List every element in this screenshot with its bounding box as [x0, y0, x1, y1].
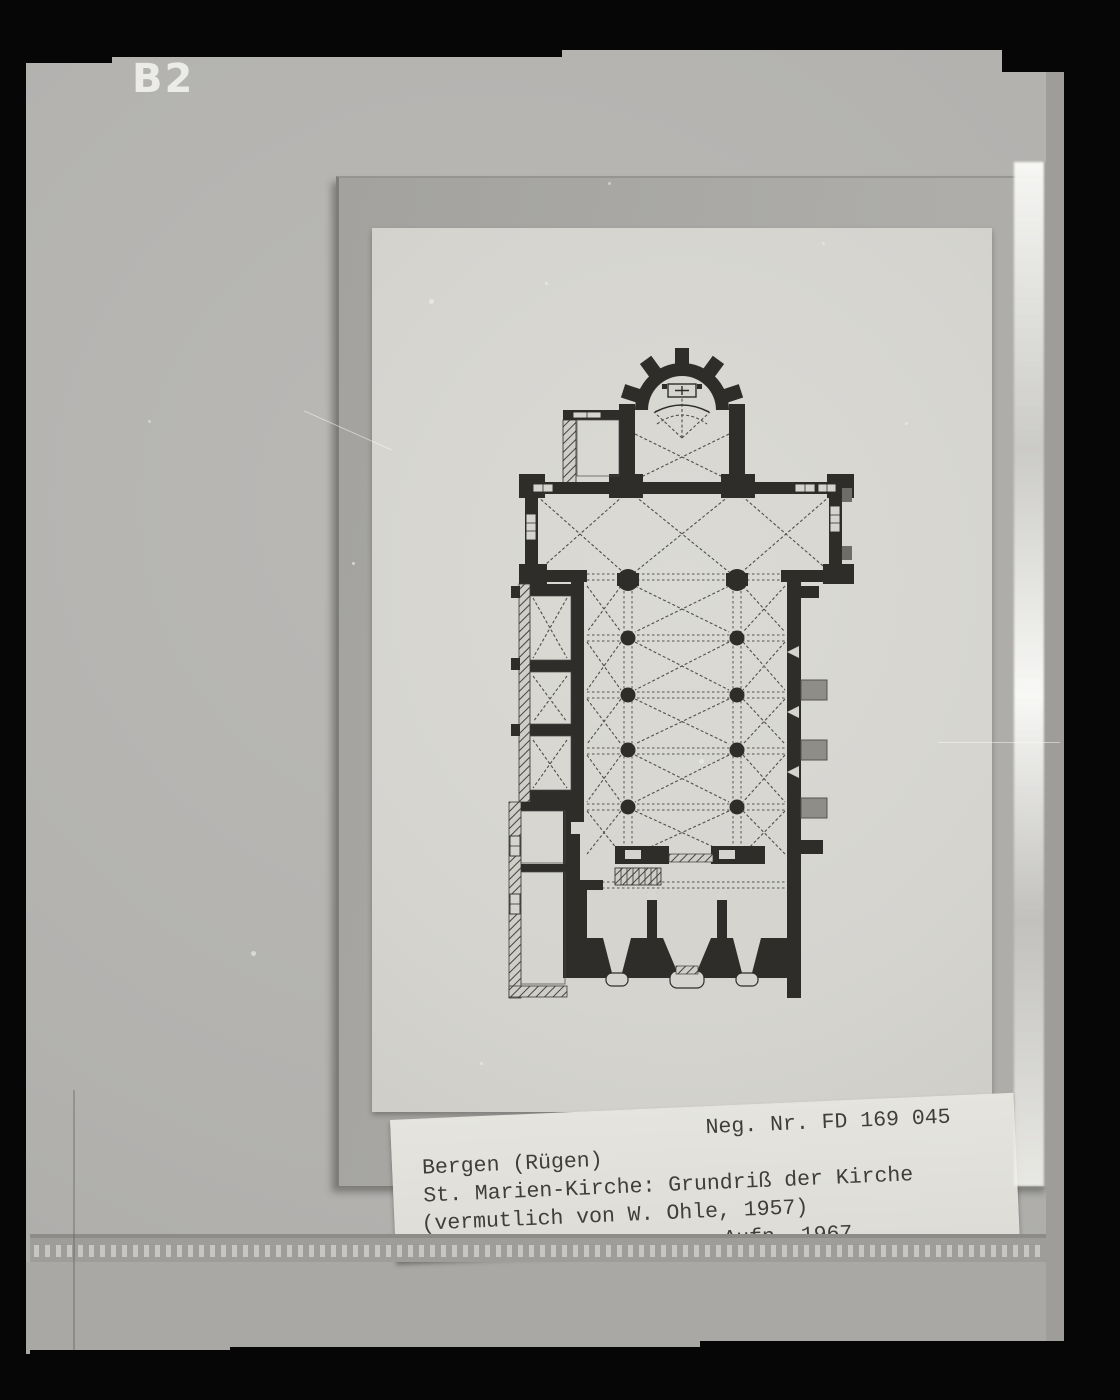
church-floor-plan	[505, 340, 865, 1000]
film-border-right	[1064, 0, 1120, 1400]
aisle-walls	[571, 582, 823, 854]
print-sheet	[372, 228, 992, 1112]
film-border-patch	[1002, 50, 1120, 72]
portal-steps	[676, 966, 698, 974]
sleeve-highlight	[1014, 162, 1047, 1186]
right-buttresses	[801, 680, 827, 818]
portal-base-right	[736, 973, 758, 986]
film-border-patch	[0, 50, 112, 63]
film-border-left	[0, 0, 26, 1400]
film-border-bottom	[0, 1354, 1120, 1400]
film-border-patch	[30, 1350, 230, 1356]
mount-edge	[73, 1090, 75, 1356]
film-border-top	[0, 0, 1120, 50]
left-chapels	[511, 584, 571, 802]
archival-photo: Neg. Nr. FD 169 045 Bergen (Rügen) St. M…	[0, 0, 1120, 1400]
serrated-edge	[30, 1234, 1046, 1262]
film-border-patch	[112, 50, 562, 57]
scratch-mark-2	[938, 742, 1060, 743]
film-border-patch	[230, 1347, 710, 1355]
corner-marker: B2	[132, 56, 194, 102]
portal-base-left	[606, 973, 628, 986]
film-border-patch	[700, 1341, 1064, 1355]
right-gray-strip	[1046, 52, 1064, 1356]
altar-icon	[655, 384, 709, 412]
north-annex	[563, 410, 621, 484]
